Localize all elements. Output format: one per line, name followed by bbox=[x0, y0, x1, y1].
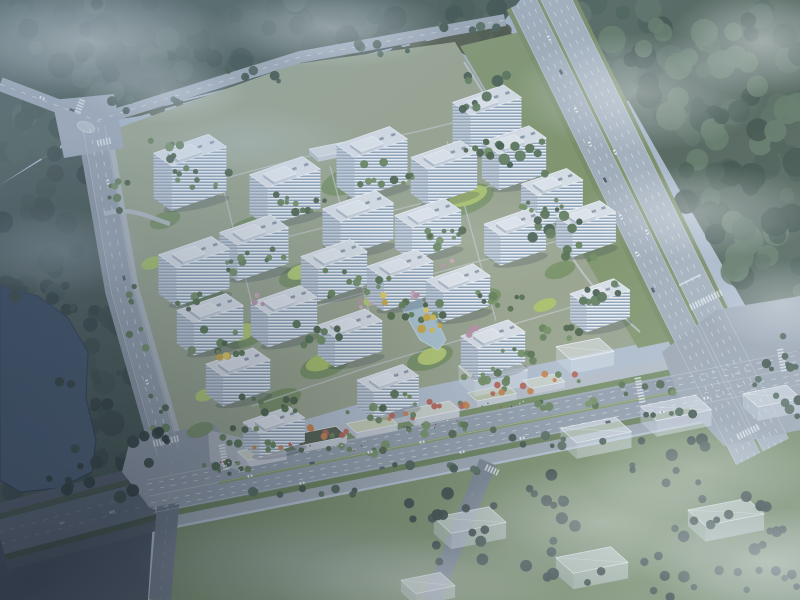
render-canvas bbox=[0, 0, 800, 600]
atmosphere-layer bbox=[0, 0, 800, 600]
aerial-render bbox=[0, 0, 800, 600]
